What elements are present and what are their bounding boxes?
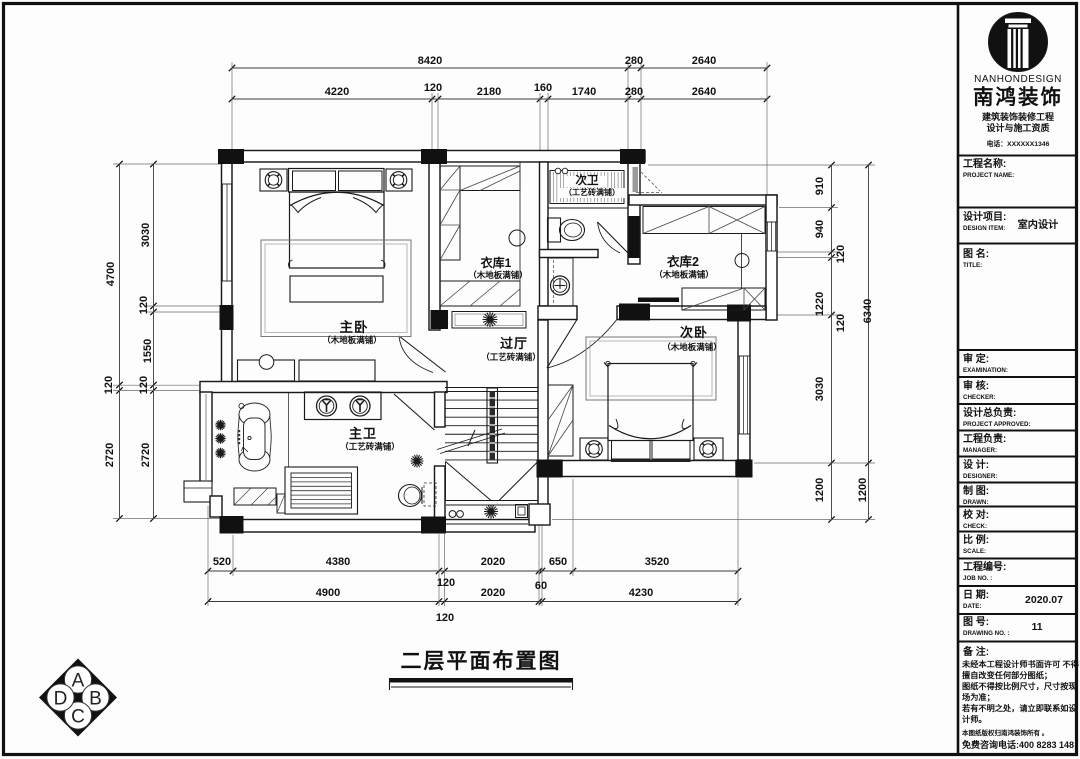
svg-text:4230: 4230 bbox=[629, 587, 653, 599]
svg-text:910: 910 bbox=[814, 177, 826, 195]
svg-text:8420: 8420 bbox=[418, 55, 442, 67]
svg-text:过厅: 过厅 bbox=[500, 336, 528, 351]
svg-text:审 核:: 审 核: bbox=[963, 379, 989, 392]
svg-text:若有不明之处，请立即联系如设: 若有不明之处，请立即联系如设 bbox=[961, 703, 1077, 713]
svg-text:11: 11 bbox=[1031, 621, 1042, 633]
svg-text:120: 120 bbox=[437, 577, 455, 589]
svg-text:2020: 2020 bbox=[481, 556, 505, 568]
svg-text:设计项目:: 设计项目: bbox=[963, 210, 1006, 223]
svg-text:1550: 1550 bbox=[142, 339, 154, 363]
svg-text:未经本工程设计师书面许可 不得: 未经本工程设计师书面许可 不得 bbox=[961, 659, 1079, 669]
svg-text:60: 60 bbox=[535, 580, 547, 592]
svg-text:（木地板满铺）: （木地板满铺） bbox=[322, 335, 382, 345]
svg-text:次卫: 次卫 bbox=[576, 173, 599, 187]
svg-text:EXAMINATION:: EXAMINATION: bbox=[963, 367, 1008, 374]
svg-text:设计总负责:: 设计总负责: bbox=[963, 406, 1016, 419]
svg-text:（工艺砖满铺）: （工艺砖满铺） bbox=[340, 442, 400, 452]
svg-text:2720: 2720 bbox=[104, 443, 116, 467]
svg-text:DRAWN:: DRAWN: bbox=[963, 499, 988, 506]
svg-text:设 计:: 设 计: bbox=[963, 458, 989, 471]
svg-text:D: D bbox=[54, 689, 68, 710]
svg-text:JOB NO. :: JOB NO. : bbox=[963, 575, 992, 582]
svg-text:940: 940 bbox=[814, 220, 826, 238]
svg-text:4380: 4380 bbox=[326, 556, 350, 568]
svg-text:3520: 3520 bbox=[645, 556, 669, 568]
svg-text:室内设计: 室内设计 bbox=[1018, 218, 1059, 231]
svg-text:1200: 1200 bbox=[857, 478, 869, 502]
svg-text:计师。: 计师。 bbox=[962, 714, 987, 724]
svg-text:3030: 3030 bbox=[140, 223, 152, 247]
svg-text:擅自改变任何部分图纸；: 擅自改变任何部分图纸； bbox=[962, 670, 1052, 681]
svg-text:本图纸版权归南鸿装饰所有 。: 本图纸版权归南鸿装饰所有 。 bbox=[962, 728, 1048, 737]
svg-text:工程名称:: 工程名称: bbox=[963, 157, 1006, 170]
svg-text:4700: 4700 bbox=[105, 262, 117, 286]
svg-text:衣库1: 衣库1 bbox=[481, 255, 512, 270]
svg-text:120: 120 bbox=[138, 376, 150, 394]
svg-text:120: 120 bbox=[103, 376, 115, 394]
svg-text:（木地板满铺）: （木地板满铺） bbox=[654, 270, 714, 280]
svg-text:南鸿装饰: 南鸿装饰 bbox=[973, 85, 1063, 109]
svg-text:主卫: 主卫 bbox=[349, 426, 377, 441]
svg-text:C: C bbox=[71, 707, 85, 728]
svg-text:制 图:: 制 图: bbox=[963, 484, 989, 497]
svg-text:1220: 1220 bbox=[814, 292, 826, 316]
svg-text:工程负责:: 工程负责: bbox=[963, 432, 1006, 445]
svg-text:280: 280 bbox=[625, 55, 643, 67]
svg-text:B: B bbox=[89, 689, 102, 710]
svg-text:2020.07: 2020.07 bbox=[1025, 594, 1063, 606]
svg-text:图 名:: 图 名: bbox=[963, 247, 989, 260]
svg-text:DATE:: DATE: bbox=[963, 603, 981, 610]
svg-text:建筑装饰装修工程: 建筑装饰装修工程 bbox=[982, 111, 1054, 122]
svg-text:120: 120 bbox=[138, 296, 150, 314]
svg-text:场为准；: 场为准； bbox=[962, 692, 995, 703]
svg-text:TITLE:: TITLE: bbox=[963, 262, 982, 269]
svg-text:PROJECT NAME:: PROJECT NAME: bbox=[963, 172, 1014, 179]
svg-text:（木地板满铺）: （木地板满铺） bbox=[468, 270, 528, 280]
svg-text:衣库2: 衣库2 bbox=[667, 254, 699, 269]
svg-text:PROJECT APPROVED:: PROJECT APPROVED: bbox=[963, 421, 1031, 428]
svg-text:650: 650 bbox=[549, 556, 567, 568]
svg-text:次卧: 次卧 bbox=[680, 325, 708, 340]
svg-text:4900: 4900 bbox=[316, 587, 340, 599]
svg-text:2640: 2640 bbox=[692, 86, 716, 98]
svg-text:2720: 2720 bbox=[140, 443, 152, 467]
svg-text:1740: 1740 bbox=[572, 86, 596, 98]
svg-text:（工艺砖满铺）: （工艺砖满铺） bbox=[481, 352, 541, 362]
svg-text:DESIGN ITEM:: DESIGN ITEM: bbox=[963, 225, 1005, 232]
svg-text:二层平面布置图: 二层平面布置图 bbox=[401, 649, 562, 673]
svg-text:120: 120 bbox=[424, 82, 442, 94]
svg-text:4220: 4220 bbox=[325, 86, 349, 98]
svg-text:DRAWING NO. :: DRAWING NO. : bbox=[963, 630, 1009, 637]
svg-text:（工艺砖满铺）: （工艺砖满铺） bbox=[564, 187, 620, 197]
svg-text:120: 120 bbox=[436, 612, 454, 624]
svg-text:2020: 2020 bbox=[481, 587, 505, 599]
svg-text:电话：XXXXXX1346: 电话：XXXXXX1346 bbox=[987, 139, 1050, 148]
svg-text:设计与施工资质: 设计与施工资质 bbox=[986, 122, 1049, 133]
svg-text:2180: 2180 bbox=[477, 86, 501, 98]
svg-text:520: 520 bbox=[213, 556, 231, 568]
svg-text:审 定:: 审 定: bbox=[963, 352, 989, 365]
svg-text:免费咨询电话:400 8283 148: 免费咨询电话:400 8283 148 bbox=[962, 739, 1074, 750]
svg-text:CHECKER:: CHECKER: bbox=[963, 394, 996, 401]
svg-text:280: 280 bbox=[625, 86, 643, 98]
svg-text:（木地板满铺）: （木地板满铺） bbox=[662, 342, 722, 352]
svg-text:120: 120 bbox=[835, 245, 847, 263]
svg-text:备 注:: 备 注: bbox=[962, 645, 989, 658]
svg-text:校 对:: 校 对: bbox=[963, 508, 989, 521]
svg-text:图 号:: 图 号: bbox=[963, 616, 989, 628]
svg-text:DESIGNER:: DESIGNER: bbox=[963, 473, 997, 480]
svg-text:SCALE:: SCALE: bbox=[963, 548, 986, 555]
svg-text:160: 160 bbox=[534, 82, 552, 94]
svg-text:6340: 6340 bbox=[862, 299, 874, 323]
svg-text:图纸不得按比例尺寸，尺寸按现: 图纸不得按比例尺寸，尺寸按现 bbox=[962, 681, 1077, 691]
svg-text:2640: 2640 bbox=[692, 55, 716, 67]
svg-text:3030: 3030 bbox=[814, 377, 826, 401]
svg-text:工程编号:: 工程编号: bbox=[963, 560, 1006, 573]
svg-text:主卧: 主卧 bbox=[340, 319, 369, 335]
svg-text:日 期:: 日 期: bbox=[963, 588, 989, 601]
svg-text:120: 120 bbox=[835, 314, 847, 332]
svg-text:1200: 1200 bbox=[814, 478, 826, 502]
svg-text:CHECK:: CHECK: bbox=[963, 523, 987, 530]
svg-text:比 例:: 比 例: bbox=[963, 533, 989, 546]
svg-text:NANHONDESIGN: NANHONDESIGN bbox=[974, 74, 1062, 85]
svg-text:MANAGER:: MANAGER: bbox=[963, 447, 997, 454]
svg-text:A: A bbox=[72, 671, 85, 692]
